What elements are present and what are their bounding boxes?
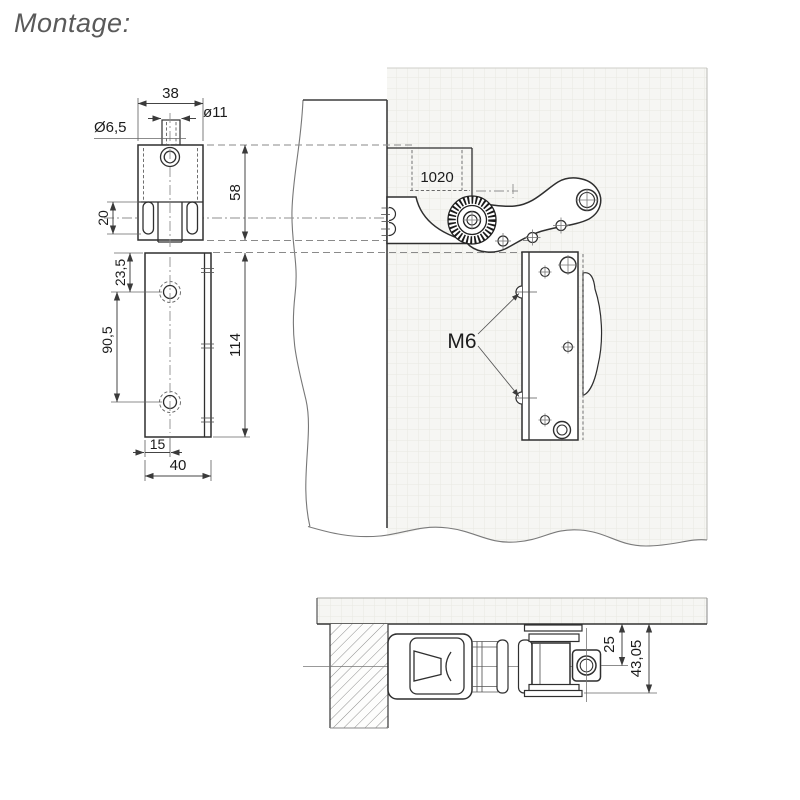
dim-plate-hole-spacing: 90,5 — [99, 326, 115, 353]
front-view-plate: 23,5 90,5 114 15 40 — [99, 253, 250, 481]
frame-hatched-block — [330, 624, 388, 728]
frame-beam — [292, 100, 387, 528]
frame-section — [330, 624, 388, 728]
latch-body — [388, 634, 472, 699]
dim-bracket-height: 58 — [227, 184, 244, 201]
bracket-pin-boss-tab — [162, 120, 180, 145]
part-number-label: 1020 — [420, 169, 453, 186]
screw-size-label: M6 — [447, 330, 476, 353]
latch-flange-bottom-outer — [525, 691, 583, 697]
dim-pin-boss-dia: ø11 — [203, 104, 228, 121]
latch-flange-top-inner — [529, 634, 579, 642]
montage-drawing-page: Montage: — [0, 0, 800, 800]
dim-plate-hole-edge: 15 — [150, 436, 166, 452]
dim-plate-first-hole: 23,5 — [112, 259, 128, 286]
door-panel-section — [317, 598, 707, 624]
knurled-adjuster-wheel — [448, 196, 496, 244]
dim-plate-height: 114 — [227, 333, 244, 357]
dim-hole-dia: Ø6,5 — [94, 119, 127, 136]
bottom-view: 25 43,05 — [303, 598, 707, 728]
latch-pin-1 — [497, 640, 508, 693]
dim-slot-length: 20 — [95, 210, 111, 226]
technical-drawing: 38 ø11 Ø6,5 58 20 — [0, 0, 800, 800]
dim-axis-offset: 25 — [601, 636, 618, 653]
dim-plate-width: 40 — [170, 457, 187, 474]
front-view-bracket: 38 ø11 Ø6,5 58 20 — [94, 85, 245, 247]
dim-bracket-width: 38 — [162, 85, 179, 102]
dim-overall-depth: 43,05 — [628, 640, 645, 678]
bracket-body — [138, 145, 203, 240]
door-panel-strip — [317, 598, 707, 624]
latch-flange-top-outer — [525, 625, 583, 631]
latch-carriage — [532, 643, 570, 691]
main-view: 38 ø11 Ø6,5 58 20 — [94, 68, 707, 546]
